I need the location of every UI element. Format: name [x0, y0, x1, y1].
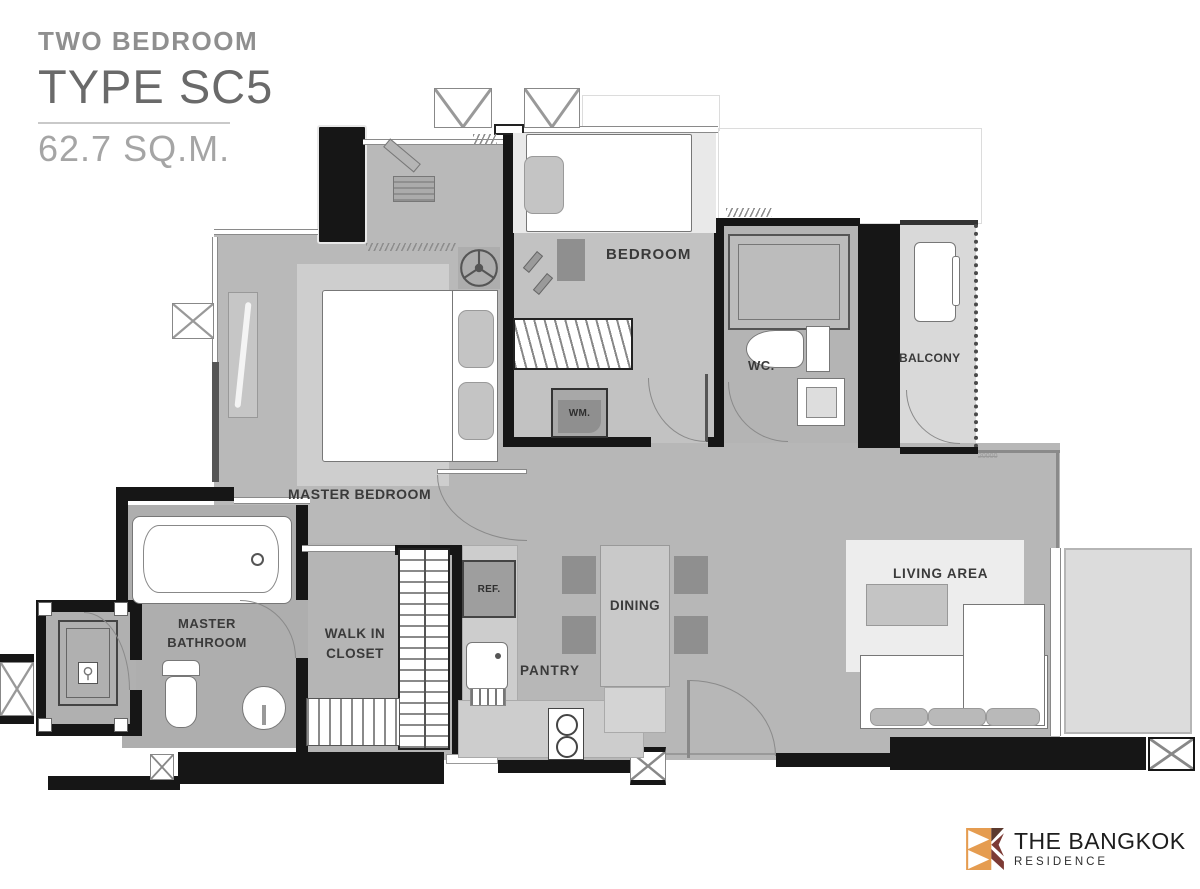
pillow: [458, 310, 494, 368]
door-swing: [437, 469, 527, 474]
toilet-tank: [162, 660, 200, 676]
brand-name: THE BANGKOK: [1014, 828, 1186, 854]
right-balcony-floor: [1064, 548, 1192, 734]
title-block: TWO BEDROOM TYPE SC5 62.7 SQ.M.: [38, 26, 273, 170]
wall-post: [38, 718, 52, 732]
wardrobe-black: [317, 125, 367, 244]
pillow: [524, 156, 564, 214]
walk-in-closet-label: CLOSET: [305, 646, 405, 661]
wall: [708, 437, 724, 447]
curtain-hatch: [726, 208, 772, 217]
dining-chair: [562, 556, 596, 594]
closet-hangers: [513, 318, 633, 370]
curtain-hatch: [473, 134, 497, 145]
wall-post: [114, 718, 128, 732]
master-bathroom-label: BATHROOM: [157, 635, 257, 650]
burner: [556, 714, 578, 736]
bathroom-sink: [797, 378, 845, 426]
wall: [130, 600, 142, 660]
balcony-railing: [969, 224, 978, 448]
faucet-dot: [495, 653, 501, 659]
sliding-door: [1050, 548, 1061, 736]
wall: [212, 362, 219, 482]
wall-post: [114, 602, 128, 616]
wall: [503, 437, 651, 447]
wall-thin: [1056, 450, 1059, 550]
wall: [116, 487, 234, 501]
dresser: [393, 176, 435, 202]
ac-condenser-clamp: [952, 256, 960, 306]
mirror-glass: [234, 302, 251, 408]
shower-area: [728, 234, 850, 330]
washing-machine-label: WM.: [553, 408, 606, 419]
toilet: [165, 676, 197, 728]
dining-table: [600, 545, 670, 687]
column-marker: [434, 88, 492, 128]
column-marker: [150, 754, 174, 780]
balcony-label: BALCONY: [899, 351, 960, 365]
dressing-mirror: [228, 292, 258, 418]
wall: [900, 220, 978, 225]
wall: [0, 716, 34, 724]
brand-logo-text: THE BANGKOK RESIDENCE: [1014, 828, 1186, 868]
dimension-text: 20000: [978, 453, 997, 460]
bathtub: [132, 516, 292, 604]
window-wall: [214, 229, 318, 235]
bedroom-label: BEDROOM: [606, 246, 691, 263]
cased-opening: [302, 545, 395, 552]
pillow: [458, 382, 494, 440]
nightstand: [557, 239, 585, 281]
console: [604, 687, 666, 733]
burner: [556, 736, 578, 758]
hanger-rail-bar: [424, 550, 426, 748]
wall: [714, 218, 860, 226]
sofa-cushion: [870, 708, 928, 726]
kitchen-sink: [466, 642, 508, 690]
sink-basin: [806, 387, 837, 418]
wall: [890, 737, 1146, 770]
dish-rack: [470, 688, 506, 706]
round-sink: [242, 686, 286, 730]
column-marker: [1148, 737, 1195, 771]
master-bedroom-label: MASTER BEDROOM: [288, 486, 431, 502]
brand-logo-icon: [966, 828, 1004, 870]
refrigerator: REF.: [462, 560, 516, 618]
column-marker: [172, 303, 214, 339]
shower-area-inner: [738, 244, 840, 320]
dining-chair: [674, 556, 708, 594]
walk-in-closet-label: WALK IN: [305, 626, 405, 641]
wall: [714, 223, 724, 443]
stove: [548, 708, 584, 760]
ac-condenser-unit: [914, 242, 956, 322]
dining-chair: [674, 616, 708, 654]
master-bed: [322, 290, 454, 462]
shoe-rack: [306, 698, 400, 746]
wall: [130, 690, 142, 736]
sofa-cushion: [928, 708, 986, 726]
closet-hanger-rail: [398, 548, 450, 750]
dining-chair: [562, 616, 596, 654]
unit-area: 62.7 SQ.M.: [38, 128, 273, 170]
living-area-label: LIVING AREA: [893, 566, 988, 581]
wall: [178, 752, 444, 784]
sofa-cushion: [986, 708, 1040, 726]
bathtub-drain: [251, 553, 264, 566]
wall: [0, 654, 34, 662]
ceiling-fan-icon: [458, 247, 500, 289]
column-marker: [0, 662, 34, 716]
toilet-tank: [806, 326, 830, 372]
wall-post: [38, 602, 52, 616]
brand-subname: RESIDENCE: [1014, 856, 1186, 868]
curtain-hatch: [366, 243, 456, 251]
brand-logo: THE BANGKOK RESIDENCE: [966, 828, 1186, 870]
refrigerator-label: REF.: [478, 584, 501, 595]
washing-machine: WM.: [551, 388, 608, 438]
pantry-label: PANTRY: [520, 663, 580, 678]
dining-label: DINING: [602, 598, 668, 613]
wall: [776, 753, 890, 767]
sink-stem: [262, 705, 266, 725]
wall: [858, 224, 900, 448]
wc-label: WC.: [748, 358, 775, 373]
title-divider: [38, 122, 230, 124]
unit-type-name: TYPE SC5: [38, 59, 273, 114]
floor-plan-canvas: TWO BEDROOM TYPE SC5 62.7 SQ.M.: [0, 0, 1200, 889]
column-marker: [524, 88, 580, 128]
wall: [296, 505, 308, 600]
wall: [116, 501, 128, 606]
master-bathroom-label: MASTER: [157, 616, 257, 631]
unit-type-label: TWO BEDROOM: [38, 26, 273, 57]
coffee-table: [866, 584, 948, 626]
wall: [36, 600, 46, 736]
wall: [900, 447, 978, 454]
wall: [498, 760, 632, 773]
